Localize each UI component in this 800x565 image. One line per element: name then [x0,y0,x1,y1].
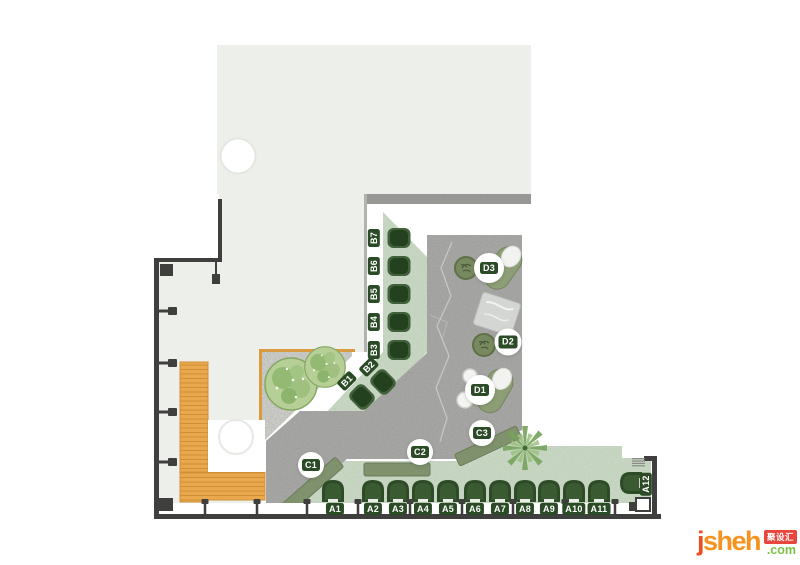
seat-label-b6: B6 [368,257,380,275]
seat-label-a5: A5 [439,503,457,515]
seat-label-a8: A8 [516,503,534,515]
corner-post-icon [159,498,173,511]
interior-wall [218,199,222,262]
lounge-label-d1-text: D1 [471,384,489,396]
watermark: jsheh 聚设汇 .com [697,526,797,562]
seat-label-b4: B4 [368,313,380,331]
seat-label-a10: A10 [562,503,585,515]
interior-wall [154,258,222,262]
watermark-tld: .com [767,543,796,557]
right-wall [652,456,657,519]
window-box-icon [160,264,173,276]
seat-label-b7: B7 [368,229,380,247]
lounge-label-d2-text: D2 [499,336,517,348]
watermark-brand: jsheh [697,526,760,557]
bench-label-c1-text: C1 [302,459,320,471]
watermark-badge: 聚设汇 [764,530,797,544]
seat-label-a9: A9 [540,503,558,515]
upper-wall-strip [367,194,531,204]
lounge-label-d3-text: D3 [480,262,498,274]
seat-label-a4: A4 [414,503,432,515]
seat-label-a11: A11 [588,503,611,515]
seat-label-a6: A6 [466,503,484,515]
column [221,139,256,174]
round-table [473,334,495,356]
door-leaf-icon [636,498,650,511]
seat-label-a1: A1 [326,503,344,515]
bench-label-c1: C1 [298,452,324,478]
bench-label-c2: C2 [407,439,433,465]
lounge-label-d1: D1 [465,375,495,405]
seat-label-b3: B3 [368,341,380,359]
lounge-label-d2: D2 [495,329,522,356]
door-post-icon [629,502,635,511]
left-wall [154,258,159,519]
floor-plan-drawing [0,0,800,565]
bench-label-c3: C3 [469,420,495,446]
right-wall-stub [644,456,657,461]
planter-edge-top [259,349,355,352]
bottom-wall [154,514,661,519]
bench-label-c2-text: C2 [411,446,429,458]
column [219,420,253,454]
floor-plan-canvas: A1 A2 A3 A4 A5 A6 A7 A8 A9 A10 A11 A12 B… [0,0,800,565]
floor-edge-line [364,194,367,352]
seat-label-b5: B5 [368,285,380,303]
seat-label-a3: A3 [389,503,407,515]
door-hinge-icon [212,274,220,284]
palm-plant-icon [503,426,547,470]
lounge-label-d3: D3 [474,253,504,283]
watermark-brand-rest: sheh [703,526,760,556]
seat-label-a12: A12 [640,472,652,495]
seat-label-a7: A7 [491,503,509,515]
bench-label-c3-text: C3 [473,427,491,439]
door-hinge-icon [215,262,217,276]
seat-label-a2: A2 [364,503,382,515]
